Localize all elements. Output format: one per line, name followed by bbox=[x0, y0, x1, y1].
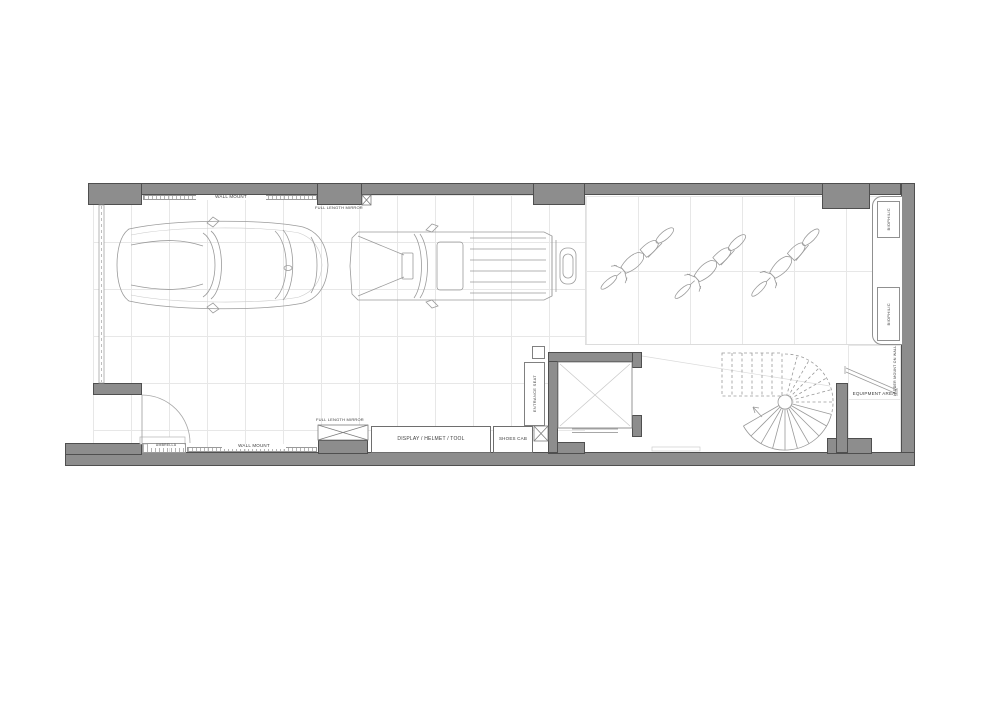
floor-plan-canvas: DISPLAY / HELMET / TOOL SHOES CAB ENTRAN… bbox=[0, 0, 1000, 707]
motorcycle-1-icon bbox=[594, 220, 680, 297]
spiral-staircase bbox=[642, 353, 833, 450]
motorcycle-2-icon bbox=[668, 227, 753, 306]
full-length-mirror-bottom-label: FULL LENGTH MIRROR bbox=[316, 418, 370, 422]
biophilic-planter-2: BIOPHILIC bbox=[877, 287, 900, 341]
full-length-mirror-top-label: FULL LENGTH MIRROR bbox=[315, 206, 367, 210]
biophilic-planter-1: BIOPHILIC bbox=[877, 201, 900, 238]
mirror-xbox-top bbox=[362, 195, 371, 205]
motorcycle-3-icon bbox=[744, 222, 826, 304]
shoes-cabinet: SHOES CAB bbox=[493, 426, 533, 453]
biophilic-label-2: BIOPHILIC bbox=[886, 303, 891, 325]
xbox-right-of-shoes-cab bbox=[534, 426, 548, 441]
wall-mount-top-label: WALL MOUNT bbox=[196, 195, 266, 200]
garage-door-track bbox=[99, 205, 104, 383]
sedan-top-view-icon bbox=[117, 217, 328, 313]
shoes-cabinet-label: SHOES CAB bbox=[499, 437, 527, 442]
elevator-shaft bbox=[558, 362, 632, 433]
plan-drawing-layer bbox=[0, 0, 1000, 707]
entry-door bbox=[140, 395, 190, 444]
suv-top-view-icon bbox=[350, 224, 576, 308]
wall-mount-bottom-label: WALL MOUNT bbox=[222, 444, 286, 449]
ladder-mount-label: LADDER MOUNT ON WALL bbox=[893, 348, 901, 396]
umbrella-label: UMBRELLA bbox=[148, 444, 184, 448]
display-helmet-tool-label: DISPLAY / HELMET / TOOL bbox=[397, 437, 464, 443]
entrance-seat-label: ENTRANCE SEAT bbox=[532, 375, 537, 412]
biophilic-label-1: BIOPHILIC bbox=[886, 208, 891, 230]
display-helmet-tool-cabinet: DISPLAY / HELMET / TOOL bbox=[371, 426, 491, 453]
floor-mat bbox=[652, 447, 700, 451]
entrance-side-box bbox=[532, 346, 545, 359]
stair-direction-arrow bbox=[753, 407, 762, 417]
entrance-seat: ENTRANCE SEAT bbox=[524, 362, 545, 426]
mirror-xbox-bottom bbox=[318, 425, 368, 440]
